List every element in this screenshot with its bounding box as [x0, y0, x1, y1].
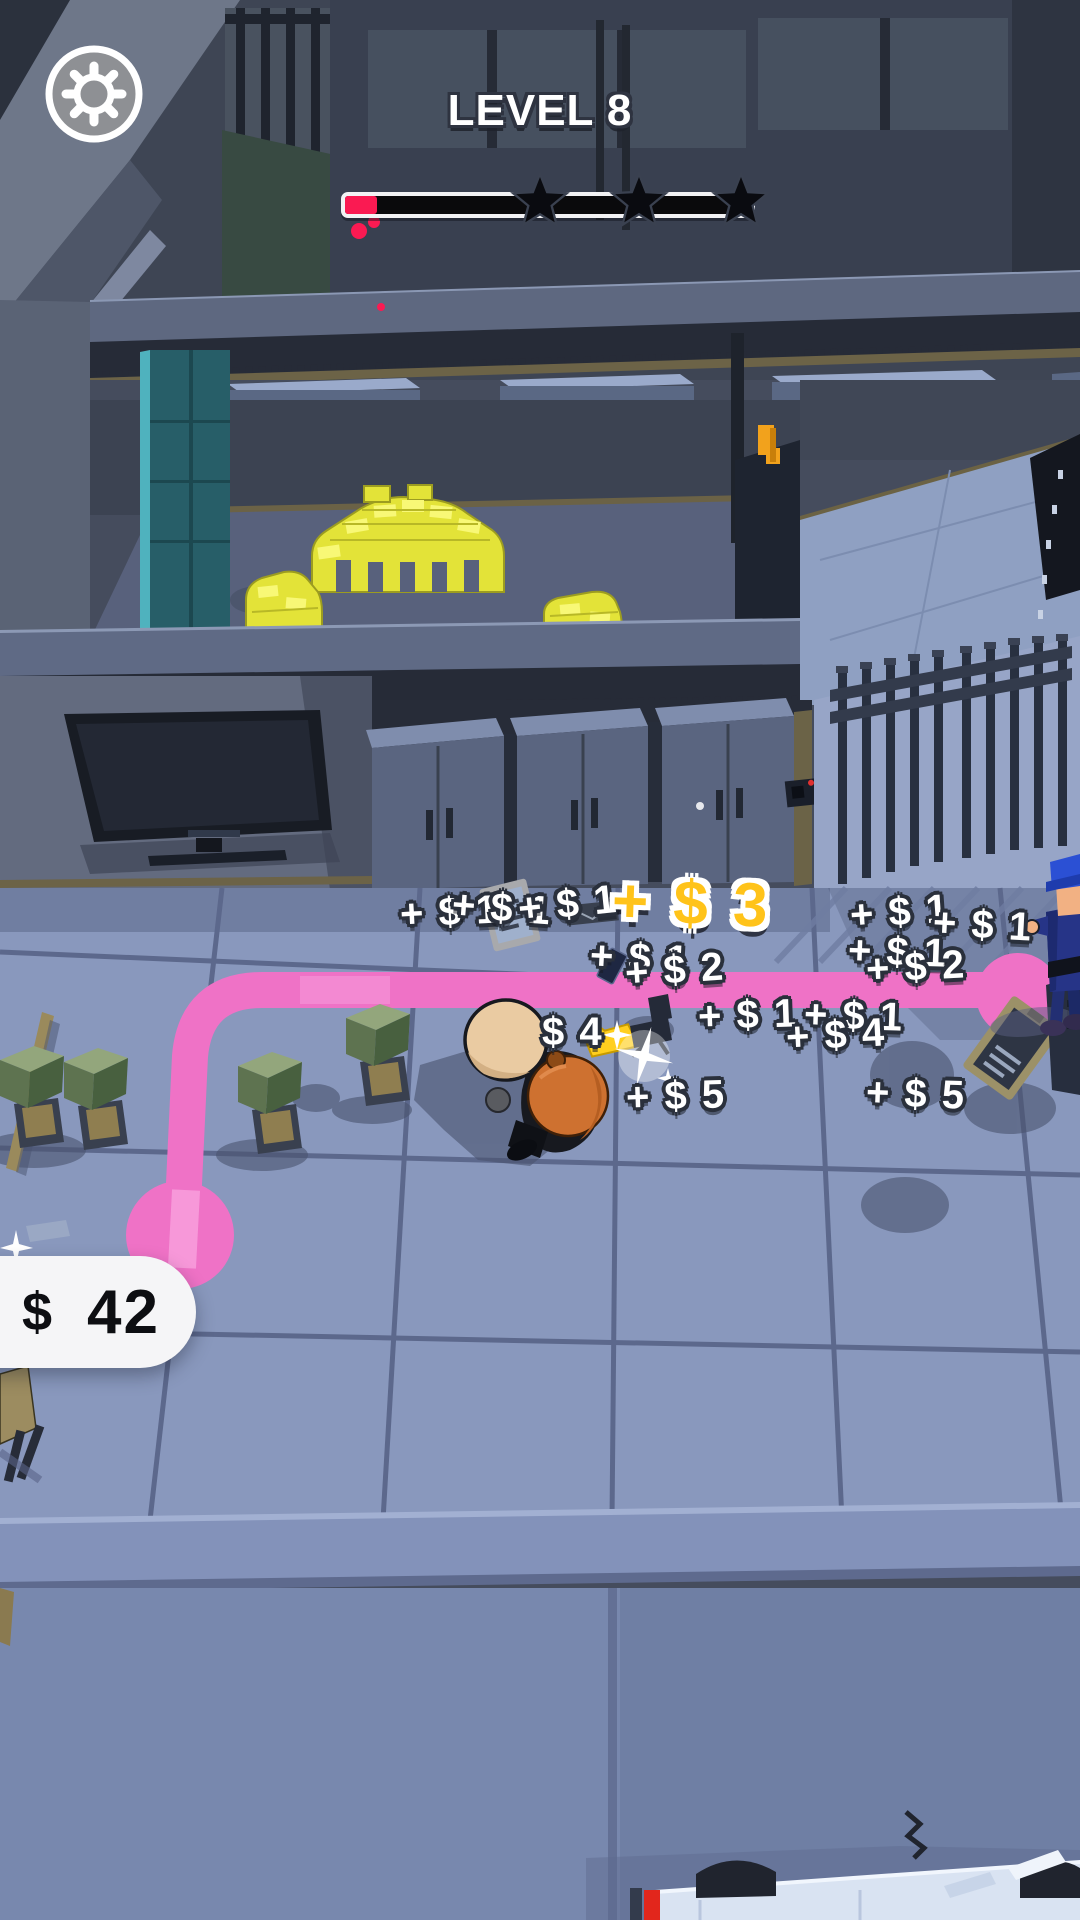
game-viewport[interactable]: + $ 1 + $ 1 + $ 1 + $ 1 + $ 2 + $ 1 + $ … — [0, 0, 1080, 1920]
money-popup: + $ 2 — [865, 942, 967, 992]
star-icon — [508, 170, 572, 234]
money-amount: 42 — [87, 1277, 160, 1348]
money-popup: + $ 2 — [624, 945, 727, 997]
money-popup: + $ 4 — [785, 1010, 887, 1060]
money-popup: + $ 5 — [865, 1070, 967, 1118]
star-icon — [709, 170, 773, 234]
star-icon — [607, 170, 671, 234]
money-popup: $ 4 — [542, 1010, 604, 1055]
tv-wall — [0, 676, 372, 890]
progress-fill — [345, 196, 377, 214]
cabinets — [366, 698, 817, 890]
money-popup: + $ 1 — [697, 991, 799, 1039]
level-title: LEVEL 8 — [0, 86, 1080, 136]
currency-symbol: $ — [22, 1281, 52, 1343]
card-reader — [785, 778, 818, 807]
money-popup: + $ 5 — [625, 1072, 727, 1120]
money-counter: $ 42 — [0, 1256, 196, 1368]
money-popup-big: + $ 3 — [611, 865, 773, 942]
level-progress — [341, 170, 755, 250]
